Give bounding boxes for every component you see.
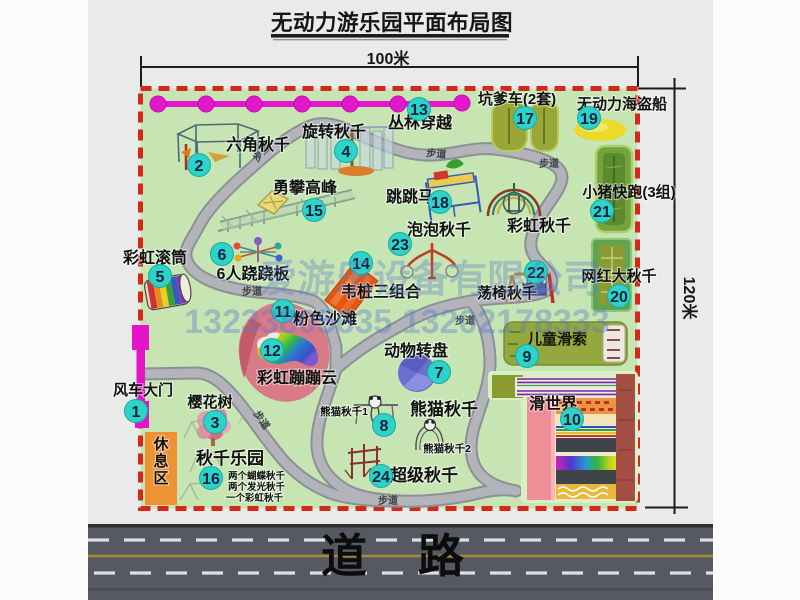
svg-text:9: 9 [523,349,532,366]
svg-text:20: 20 [610,289,628,306]
svg-text:两个蝴蝶秋千: 两个蝴蝶秋千 [228,470,286,482]
svg-text:3: 3 [211,415,220,432]
svg-text:步道: 步道 [378,494,398,507]
svg-text:21: 21 [593,204,611,221]
svg-text:休息区: 休息区 [152,435,169,487]
svg-text:19: 19 [580,111,598,128]
svg-text:16: 16 [202,471,220,488]
svg-text:超级秋千: 超级秋千 [390,465,458,485]
svg-text:六角秋千: 六角秋千 [226,135,290,154]
svg-text:2: 2 [195,158,204,175]
svg-text:4: 4 [342,144,351,161]
svg-text:12: 12 [263,343,281,360]
svg-text:23: 23 [391,237,409,254]
svg-text:坑爹车(2套): 坑爹车(2套) [478,90,556,108]
svg-text:无动力游乐园平面布局图: 无动力游乐园平面布局图 [271,10,513,35]
svg-text:跳跳马: 跳跳马 [386,187,434,206]
svg-text:1: 1 [132,404,141,421]
svg-text:熊猫秋千1: 熊猫秋千1 [320,405,368,418]
svg-text:13233805635 13202178333: 13233805635 13202178333 [184,303,609,341]
svg-text:一个彩虹秋千: 一个彩虹秋千 [226,492,284,504]
svg-text:勇攀高峰: 勇攀高峰 [273,178,338,197]
svg-text:13: 13 [410,102,428,119]
svg-text:100米: 100米 [367,49,411,68]
svg-text:两个发光秋千: 两个发光秋千 [228,481,286,493]
svg-text:18: 18 [431,195,449,212]
svg-text:秋千乐园: 秋千乐园 [196,448,264,468]
svg-text:6: 6 [218,247,227,264]
svg-text:道: 道 [321,530,367,582]
svg-text:爱游乐设备有限公司: 爱游乐设备有限公司 [259,259,601,301]
svg-text:泡泡秋千: 泡泡秋千 [407,220,471,239]
svg-text:路: 路 [418,530,465,582]
svg-text:5: 5 [156,269,165,286]
svg-text:旋转秋千: 旋转秋千 [301,122,366,141]
svg-text:樱花树: 樱花树 [187,393,232,411]
svg-text:17: 17 [516,111,534,128]
svg-text:步道: 步道 [539,157,559,170]
svg-text:熊猫秋千2: 熊猫秋千2 [423,442,471,455]
svg-text:彩虹蹦蹦云: 彩虹蹦蹦云 [256,368,337,387]
svg-text:彩虹滚筒: 彩虹滚筒 [122,248,187,267]
svg-text:15: 15 [305,203,323,220]
svg-text:24: 24 [372,469,390,486]
svg-text:小猪快跑(3组): 小猪快跑(3组) [582,183,675,201]
svg-text:风车大门: 风车大门 [113,381,173,399]
svg-text:10: 10 [563,412,581,429]
svg-text:8: 8 [380,418,389,435]
svg-text:120米: 120米 [680,277,699,321]
svg-text:熊猫秋千: 熊猫秋千 [410,399,478,419]
svg-text:彩虹秋千: 彩虹秋千 [506,216,571,235]
svg-text:7: 7 [435,365,444,382]
svg-text:动物转盘: 动物转盘 [384,341,448,360]
